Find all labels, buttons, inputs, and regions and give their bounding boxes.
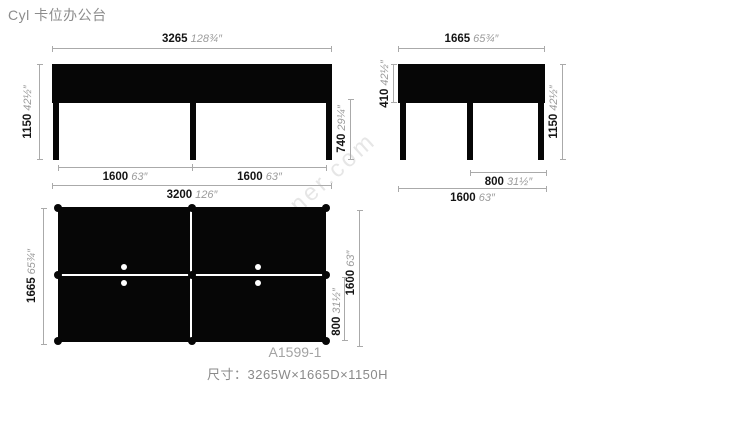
side-right-dimension-mm: 1150	[548, 114, 560, 139]
plan-left-dimension: 166565¾″	[23, 226, 39, 326]
side-bottom-half-dimension: 80031½″	[470, 174, 547, 189]
plan-left-dimension-line	[43, 208, 44, 345]
front-top-dimension-in: 128¾″	[191, 33, 222, 45]
front-bottom-total-dimension-in: 126″	[195, 189, 217, 201]
front-top-dimension-mm: 3265	[162, 33, 188, 45]
side-left-dimension-mm: 410	[379, 89, 391, 108]
side-top-dimension: 166565¾″	[398, 31, 545, 46]
front-leg-right	[326, 103, 332, 160]
connector-dot	[54, 337, 62, 345]
side-screen-panel	[398, 64, 545, 103]
plan-right-inner-dimension-in: 31½″	[331, 288, 343, 313]
connector-dot	[322, 204, 330, 212]
side-left-dimension: 41042½″	[376, 34, 392, 134]
front-screen-panel	[52, 64, 332, 103]
front-bottom-right-dimension-in: 63″	[266, 171, 282, 183]
front-bottom-total-dimension: 3200126″	[52, 187, 332, 202]
front-left-dimension: 115042½″	[19, 62, 35, 162]
front-top-dimension-line	[52, 48, 332, 49]
front-leg-middle	[190, 103, 196, 160]
front-left-dimension-line	[39, 64, 40, 160]
side-bottom-total-line	[398, 188, 547, 189]
model-code: A1599-1	[250, 344, 340, 360]
side-leg-right	[538, 103, 544, 160]
front-right-dimension-line	[350, 99, 351, 160]
plan-right-outer-dimension-line	[359, 210, 360, 347]
front-right-dimension-in: 29¼″	[336, 105, 348, 130]
grommet-dot	[255, 264, 261, 270]
front-bottom-total-line	[52, 185, 332, 186]
side-left-dimension-in: 42½″	[379, 60, 391, 85]
side-bottom-total-dimension-in: 63″	[479, 192, 495, 204]
plan-right-inner-dimension-line	[344, 277, 345, 341]
side-leg-middle	[467, 103, 473, 160]
grommet-dot	[121, 264, 127, 270]
side-bottom-half-dimension-in: 31½″	[507, 176, 532, 188]
side-bottom-total-dimension: 160063″	[398, 190, 547, 205]
side-bottom-total-dimension-mm: 1600	[450, 192, 476, 204]
side-left-dimension-line	[393, 64, 394, 103]
page-title: Cyl 卡位办公台	[8, 5, 107, 25]
plan-left-dimension-in: 65¾″	[26, 249, 38, 274]
plan-right-inner-dimension-mm: 800	[331, 317, 343, 336]
connector-dot	[188, 204, 196, 212]
side-top-dimension-line	[398, 48, 545, 49]
front-bottom-left-dimension-mm: 1600	[103, 171, 129, 183]
grommet-dot	[255, 280, 261, 286]
size-caption: 尺寸：3265W×1665D×1150H	[207, 364, 388, 383]
front-bottom-left-dimension: 160063″	[58, 169, 192, 184]
front-right-dimension: 74029¼″	[333, 79, 349, 179]
side-leg-left	[400, 103, 406, 160]
front-top-dimension: 3265128¾″	[52, 31, 332, 46]
plan-left-dimension-mm: 1665	[26, 277, 38, 303]
grommet-dot	[121, 280, 127, 286]
connector-dot	[54, 204, 62, 212]
plan-right-outer-dimension-mm: 1600	[345, 270, 357, 296]
front-left-dimension-in: 42½″	[22, 85, 34, 110]
front-leg-left	[53, 103, 59, 160]
side-bottom-half-dimension-mm: 800	[485, 176, 504, 188]
side-right-dimension-line	[562, 64, 563, 160]
side-top-dimension-in: 65¾″	[473, 33, 498, 45]
front-bottom-right-dimension: 160063″	[192, 169, 327, 184]
front-right-dimension-mm: 740	[336, 134, 348, 153]
front-bottom-left-dimension-in: 63″	[131, 171, 147, 183]
drawing-canvas: Cyl 卡位办公台 snsuner.com 3265128¾″ 115042½″…	[0, 0, 750, 427]
connector-dot	[188, 337, 196, 345]
side-right-dimension-in: 42½″	[548, 85, 560, 110]
side-right-dimension: 115042½″	[545, 62, 561, 162]
front-bottom-total-dimension-mm: 3200	[167, 189, 193, 201]
front-left-dimension-mm: 1150	[22, 114, 34, 139]
front-bottom-right-dimension-mm: 1600	[237, 171, 263, 183]
plan-right-outer-dimension-in: 63″	[345, 251, 357, 267]
side-top-dimension-mm: 1665	[445, 33, 471, 45]
side-bottom-half-line	[470, 172, 547, 173]
connector-dot	[188, 271, 196, 279]
connector-dot	[54, 271, 62, 279]
